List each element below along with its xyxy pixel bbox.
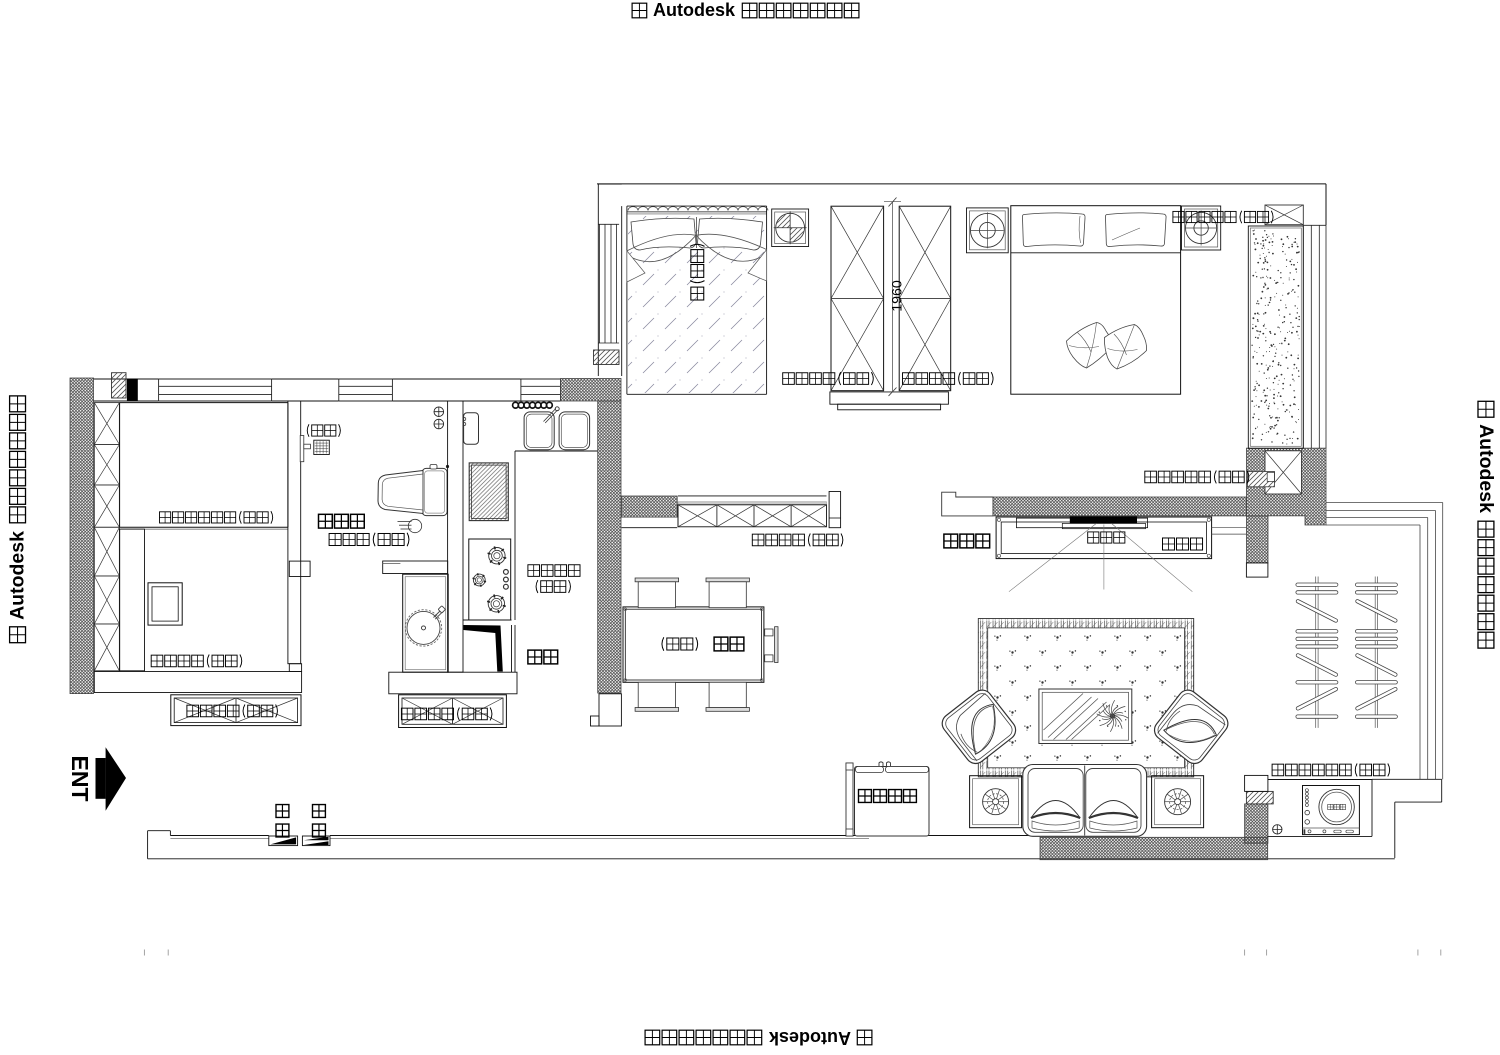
svg-text:Autodesk: Autodesk [1475,424,1497,513]
svg-text:1960: 1960 [889,280,905,312]
svg-text:ENT: ENT [67,756,93,802]
svg-text:Autodesk: Autodesk [7,531,29,620]
svg-text:Autodesk: Autodesk [653,0,736,20]
svg-text:Autodesk: Autodesk [768,1028,851,1048]
